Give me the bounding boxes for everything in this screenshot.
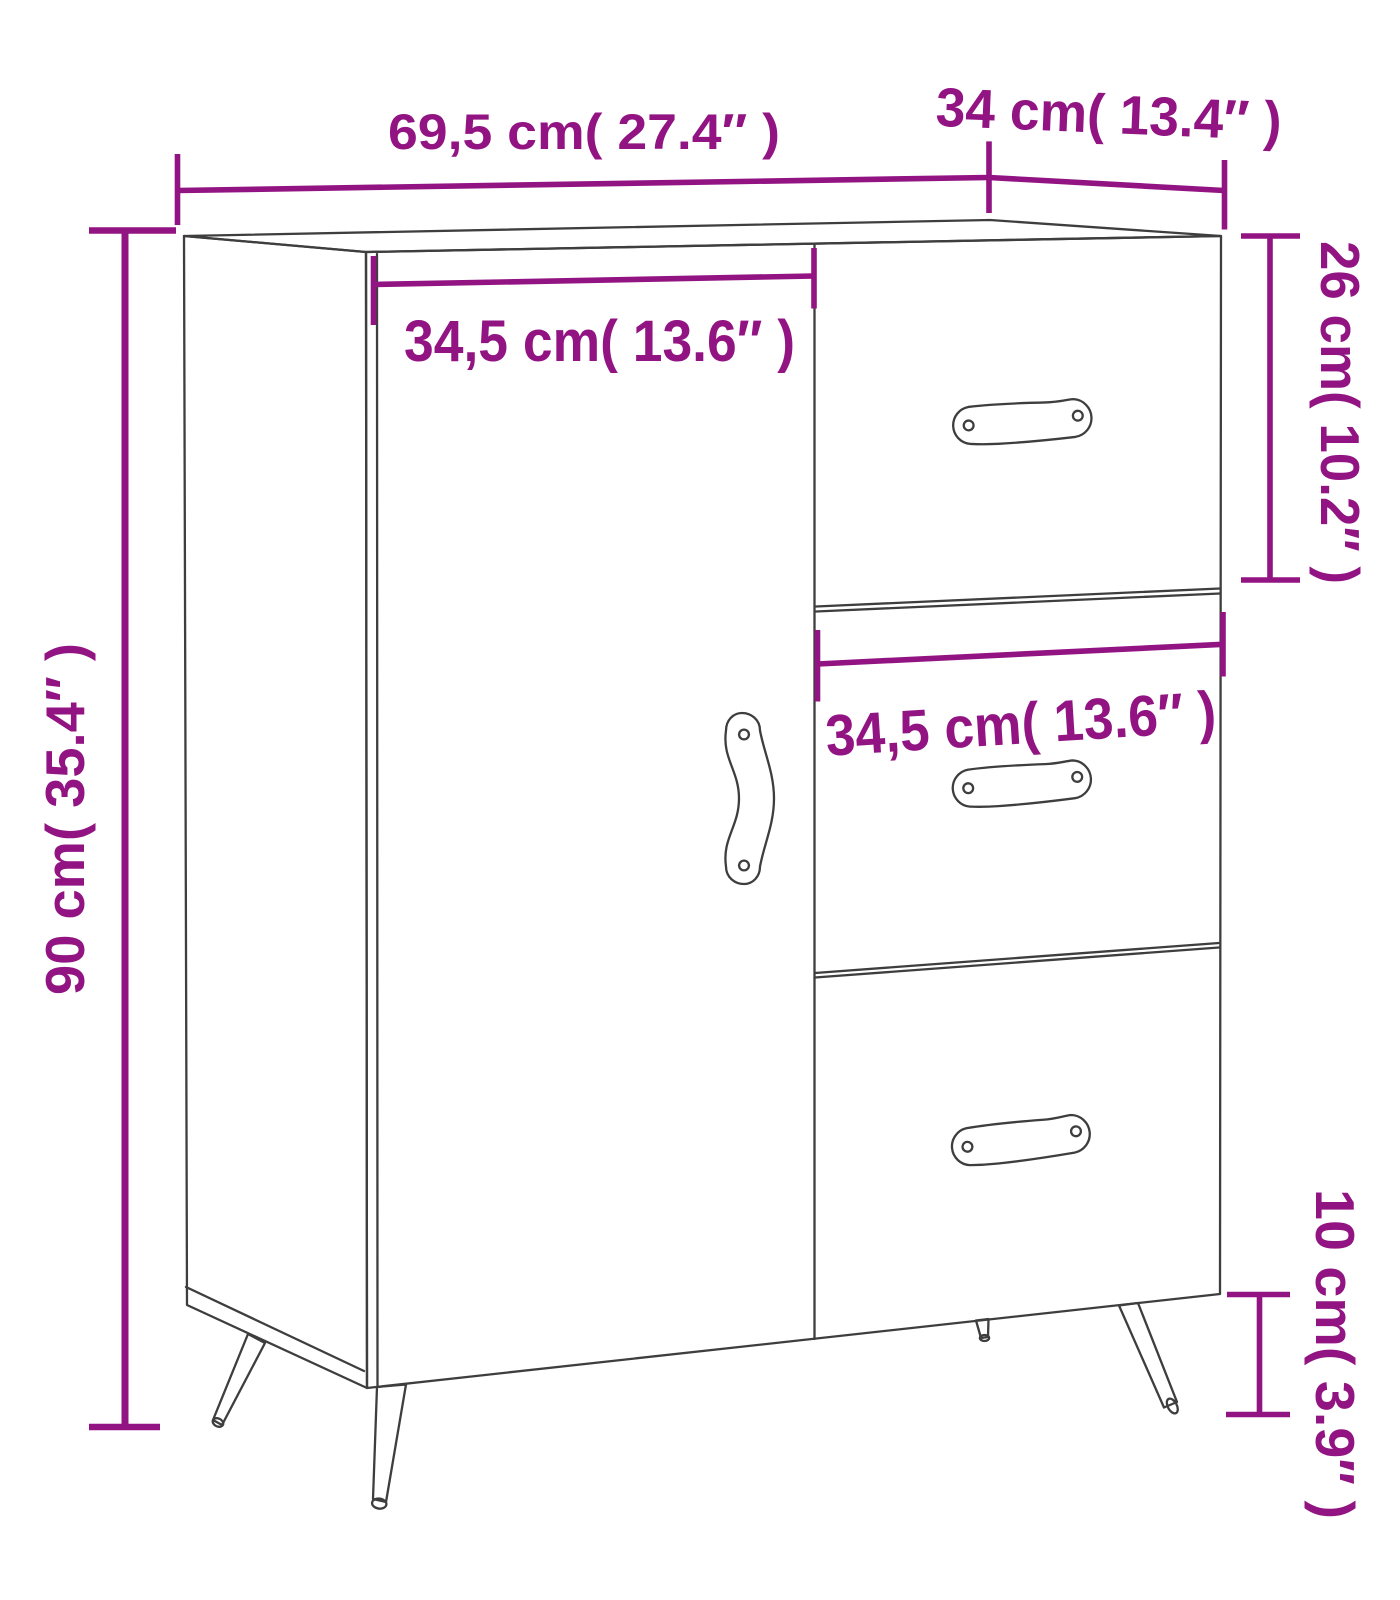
- svg-text:26 cm( 10.2″ ): 26 cm( 10.2″ ): [1309, 241, 1371, 584]
- svg-text:34 cm( 13.4″ ): 34 cm( 13.4″ ): [935, 76, 1283, 152]
- svg-text:10 cm( 3.9″ ): 10 cm( 3.9″ ): [1304, 1189, 1366, 1519]
- svg-text:69,5 cm( 27.4″ ): 69,5 cm( 27.4″ ): [388, 104, 780, 160]
- svg-text:34,5 cm( 13.6″ ): 34,5 cm( 13.6″ ): [824, 679, 1218, 768]
- svg-text:34,5 cm( 13.6″ ): 34,5 cm( 13.6″ ): [404, 309, 795, 374]
- svg-text:90 cm( 35.4″ ): 90 cm( 35.4″ ): [34, 643, 96, 995]
